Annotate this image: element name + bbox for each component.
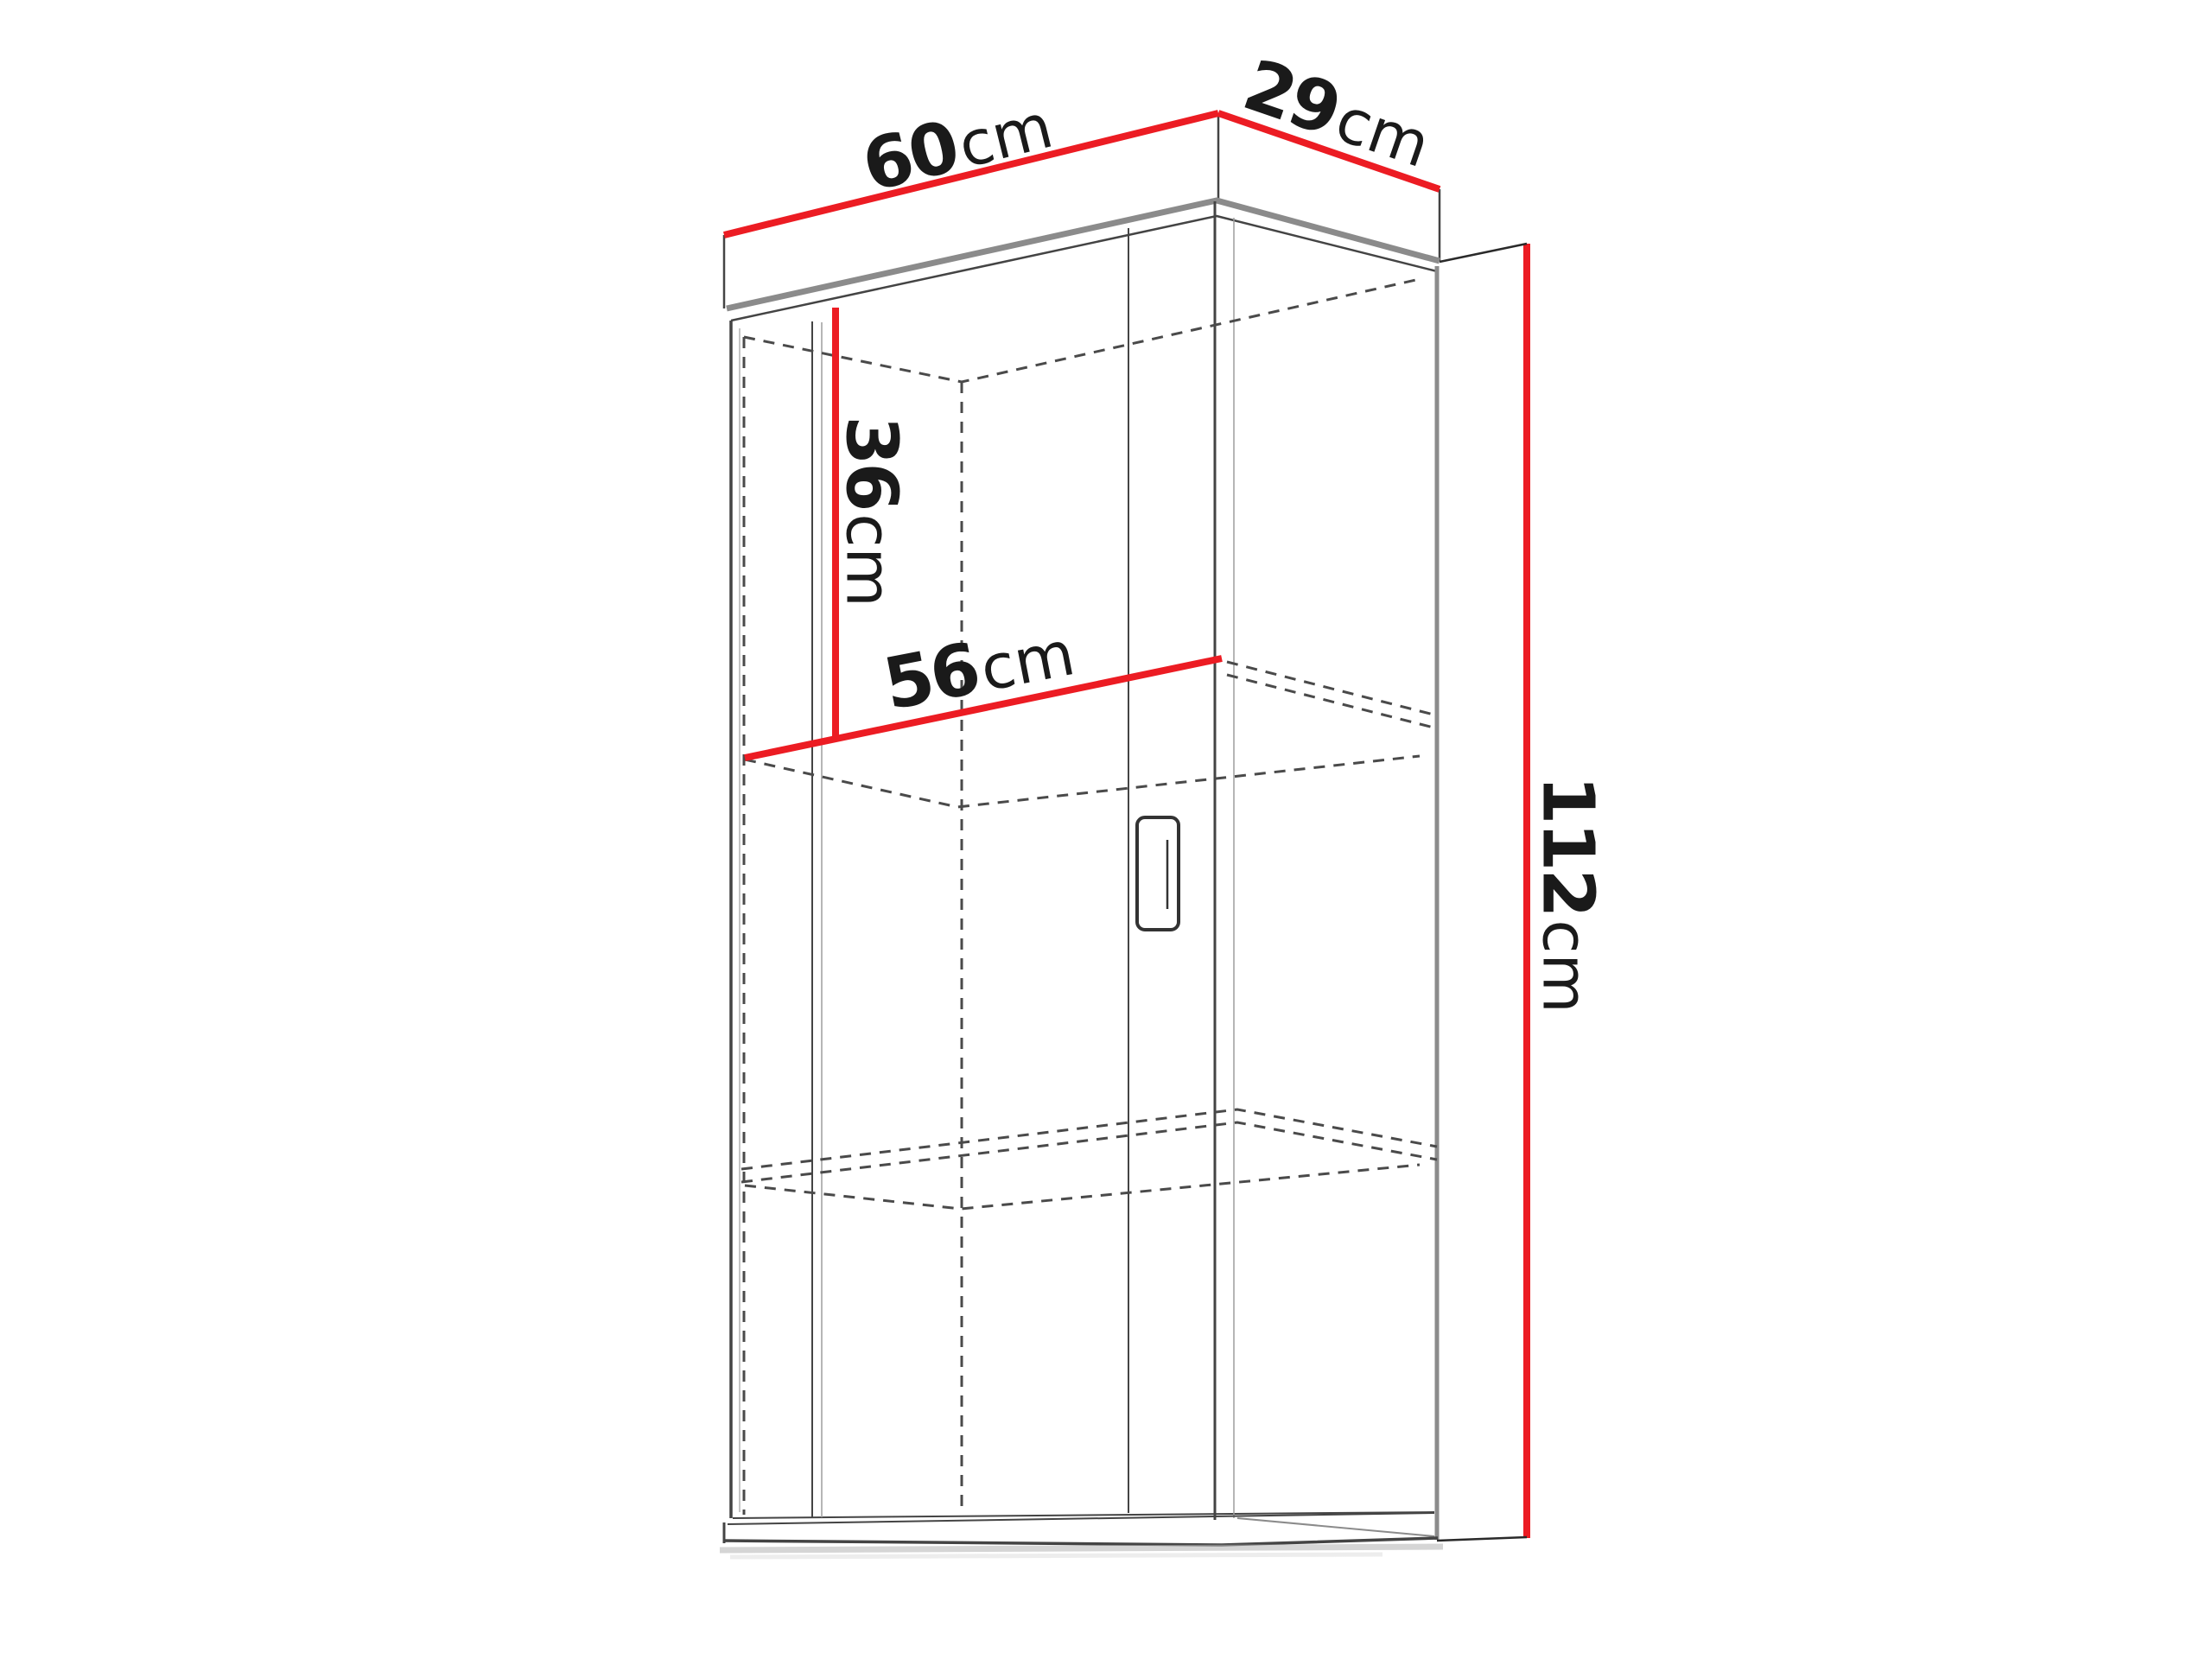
- shelf1-side-edge-bottom: [1227, 675, 1437, 728]
- dimension-label-height: 112 cm: [1527, 775, 1609, 1013]
- door-handle: [1137, 817, 1179, 930]
- height-value: 112: [1527, 775, 1609, 915]
- interior-top-edges: [744, 279, 1420, 382]
- shelf2-rear-edge: [745, 1165, 1420, 1209]
- bottom-panel: [720, 1513, 1443, 1557]
- dimension-label-top-compartment-height: 36 cm: [830, 416, 912, 607]
- bottom-panel-side-edge: [1237, 1518, 1434, 1536]
- shelf1-side-edge-top: [1227, 662, 1437, 715]
- shelf-width-unit: cm: [975, 617, 1080, 705]
- top-compartment-value: 36: [830, 416, 912, 509]
- bottom-shadow-soft: [730, 1554, 1382, 1557]
- bottom-shadow: [720, 1547, 1443, 1550]
- dimension-diagram: 60 cm 29 cm 112 cm 36 cm 56 cm: [0, 0, 2212, 1659]
- cabinet-drawing: [0, 0, 2212, 1659]
- top-panel-underside-shadow: [727, 200, 1440, 308]
- shelf1-rear-edge: [745, 756, 1420, 807]
- top-compartment-unit: cm: [833, 513, 905, 607]
- height-extension-top: [1440, 244, 1527, 262]
- shelf-width-value: 56: [877, 628, 984, 727]
- door-handle-outer: [1137, 817, 1179, 930]
- height-unit: cm: [1529, 919, 1601, 1013]
- height-extension-bottom: [1437, 1537, 1527, 1541]
- dimension-lines: [724, 113, 1527, 1541]
- shelf2-front-edge-bottom: [741, 1122, 1437, 1182]
- bottom-panel-bottom-edge: [723, 1538, 1438, 1545]
